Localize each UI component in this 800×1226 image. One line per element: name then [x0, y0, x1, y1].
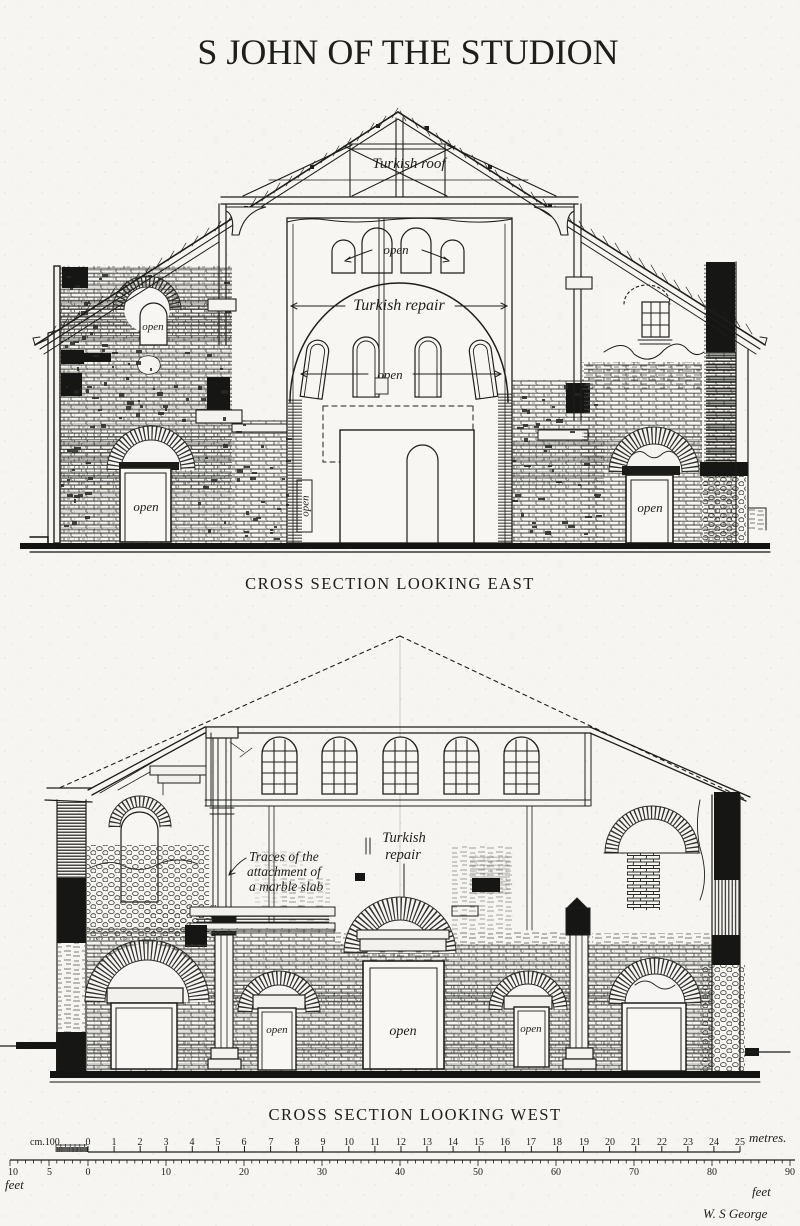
svg-text:90: 90	[785, 1167, 795, 1178]
svg-text:6: 6	[242, 1137, 247, 1148]
svg-text:metres.: metres.	[749, 1130, 786, 1145]
svg-text:24: 24	[709, 1137, 719, 1148]
svg-text:10: 10	[161, 1167, 171, 1178]
svg-text:feet: feet	[5, 1177, 24, 1192]
svg-text:0: 0	[86, 1137, 91, 1148]
svg-text:60: 60	[551, 1167, 561, 1178]
svg-text:4: 4	[190, 1137, 195, 1148]
svg-text:S JOHN OF THE STUDION: S JOHN OF THE STUDION	[197, 32, 618, 72]
svg-text:8: 8	[295, 1137, 300, 1148]
svg-text:open: open	[142, 321, 164, 333]
svg-text:19: 19	[579, 1137, 589, 1148]
svg-text:17: 17	[526, 1137, 536, 1148]
svg-text:25: 25	[735, 1137, 745, 1148]
svg-text:18: 18	[552, 1137, 562, 1148]
svg-text:0: 0	[86, 1167, 91, 1178]
svg-text:Turkish: Turkish	[382, 830, 426, 846]
svg-text:10: 10	[344, 1137, 354, 1148]
svg-text:21: 21	[631, 1137, 641, 1148]
svg-text:40: 40	[395, 1167, 405, 1178]
svg-text:3: 3	[164, 1137, 169, 1148]
svg-text:feet: feet	[752, 1184, 771, 1199]
svg-text:CROSS SECTION LOOKING EAST: CROSS SECTION LOOKING EAST	[245, 574, 535, 593]
svg-text:12: 12	[396, 1137, 406, 1148]
svg-text:23: 23	[683, 1137, 693, 1148]
svg-text:70: 70	[629, 1167, 639, 1178]
svg-text:open: open	[520, 1023, 542, 1035]
svg-text:open: open	[389, 1024, 416, 1039]
svg-text:22: 22	[657, 1137, 667, 1148]
svg-text:20: 20	[239, 1167, 249, 1178]
svg-text:2: 2	[138, 1137, 143, 1148]
svg-text:7: 7	[269, 1137, 274, 1148]
svg-text:Turkish repair: Turkish repair	[353, 297, 445, 314]
svg-text:open: open	[383, 242, 408, 257]
svg-text:open: open	[637, 500, 662, 515]
svg-text:14: 14	[448, 1137, 458, 1148]
svg-text:50: 50	[473, 1167, 483, 1178]
svg-text:W. S George: W. S George	[703, 1206, 768, 1221]
svg-text:5: 5	[216, 1137, 221, 1148]
svg-text:cm.100: cm.100	[30, 1137, 60, 1148]
svg-text:Turkish roof: Turkish roof	[372, 156, 447, 172]
svg-text:CROSS SECTION LOOKING WEST: CROSS SECTION LOOKING WEST	[268, 1105, 561, 1124]
svg-text:repair: repair	[385, 847, 421, 863]
svg-text:30: 30	[317, 1167, 327, 1178]
svg-text:9: 9	[321, 1137, 326, 1148]
svg-text:5: 5	[47, 1167, 52, 1178]
svg-text:15: 15	[474, 1137, 484, 1148]
svg-text:80: 80	[707, 1167, 717, 1178]
svg-text:1: 1	[112, 1137, 117, 1148]
svg-text:16: 16	[500, 1137, 510, 1148]
svg-text:open: open	[133, 499, 158, 514]
svg-text:open: open	[266, 1024, 288, 1036]
svg-text:11: 11	[370, 1137, 380, 1148]
svg-text:20: 20	[605, 1137, 615, 1148]
svg-text:13: 13	[422, 1137, 432, 1148]
